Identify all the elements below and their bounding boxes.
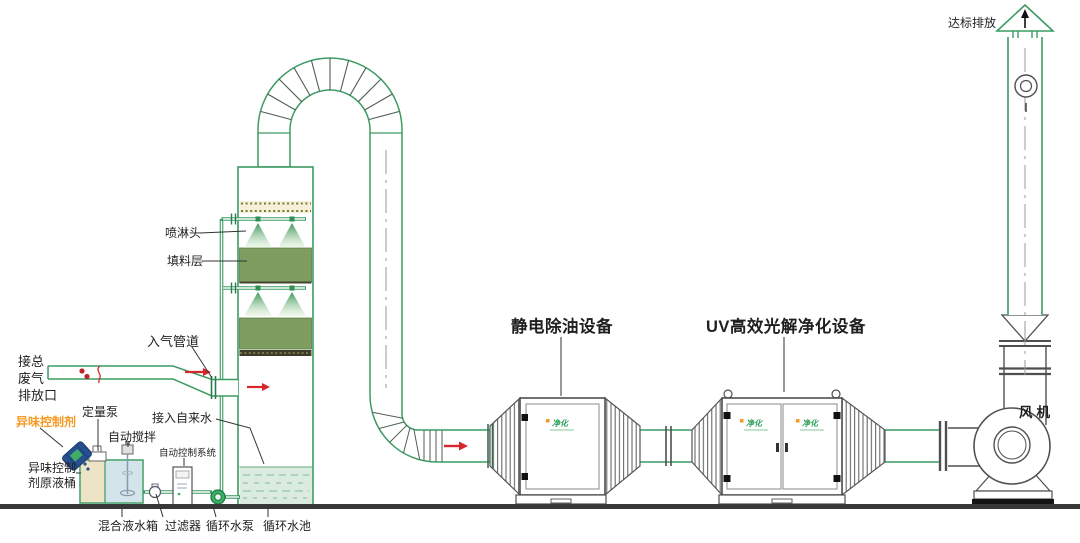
agent-drip [83, 462, 86, 465]
rain-cap [997, 5, 1053, 38]
label-fan: 风机 [1019, 404, 1054, 420]
control-cabinet [173, 467, 192, 505]
label-tap-water: 接入自来水 [152, 410, 212, 425]
label-discharge: 达标排放 [948, 15, 996, 30]
label-waste-gas-2: 废气 [18, 371, 44, 386]
label-inlet-pipe: 入气管道 [147, 334, 199, 349]
uv-corner-bracket [834, 412, 841, 419]
filter-device [150, 484, 161, 498]
connector-pipe-1 [640, 426, 692, 466]
esp-right-transition [605, 398, 640, 495]
label-uv-unit: UV高效光解净化设备 [706, 316, 866, 336]
uv-corner-bracket [724, 412, 731, 419]
uv-door-right [783, 404, 837, 489]
esp-hinge [522, 414, 529, 421]
esp-base [516, 495, 606, 504]
diagram-canvas: 净化 净化 净化 [0, 0, 1080, 543]
agent-compartment [81, 461, 105, 502]
label-waste-gas-1: 接总 [18, 354, 44, 369]
uv-corner-bracket [724, 475, 731, 482]
esp-hinge [522, 473, 529, 480]
mixing-tank [80, 460, 143, 503]
label-agent-tank-1: 异味控制 [28, 461, 76, 475]
brand-logo-text: 净化 [802, 419, 820, 428]
brand-logo-text: 净化 [746, 419, 764, 428]
lifting-ring [724, 390, 732, 398]
packing-support-grid [240, 350, 312, 356]
fan-eye-inner [998, 431, 1026, 459]
uv-right-transition [842, 398, 885, 495]
label-auto-stir: 自动搅拌 [108, 429, 156, 444]
label-esp-unit: 静电除油设备 [511, 316, 613, 336]
label-odor-agent: 异味控制剂 [16, 414, 76, 429]
label-filter: 过滤器 [165, 519, 201, 533]
label-circulating-pool: 循环水池 [263, 519, 311, 533]
waste-gas-inlet-duct [48, 366, 270, 399]
uv-door-handle [776, 443, 779, 452]
uv-base [719, 495, 845, 504]
uv-left-transition [692, 398, 722, 495]
process-flow-diagram: 净化 净化 净化 [0, 0, 1080, 543]
uv-corner-bracket [834, 475, 841, 482]
connector-pipe-2 [885, 430, 940, 462]
brand-logo-text: 净化 [552, 419, 570, 428]
label-waste-gas-3: 排放口 [18, 388, 57, 403]
packing-layer-2 [240, 318, 312, 349]
label-auto-control: 自动控制系统 [159, 447, 217, 459]
uv-unit: 净化 净化 [692, 390, 885, 504]
header-flanges [232, 214, 236, 294]
lifting-ring [832, 390, 840, 398]
esp-left-transition [490, 398, 520, 495]
label-agent-tank-2: 剂原液桶 [28, 475, 76, 490]
demister-layer [240, 201, 312, 213]
label-spray-head: 喷淋头 [165, 226, 201, 240]
circulation-pump-device [211, 490, 225, 504]
label-circulating-pump: 循环水泵 [206, 519, 254, 533]
uv-door-left [727, 404, 781, 489]
label-metering-pump: 定量泵 [82, 404, 118, 419]
esp-unit: 净化 [488, 398, 640, 504]
fan-unit: 风机 [940, 315, 1054, 506]
packing-layer-1 [240, 248, 312, 282]
label-packing-layer: 填料层 [167, 254, 203, 268]
circulating-pool [240, 467, 313, 505]
uv-door-handle [785, 443, 788, 452]
label-mixing-tank: 混合液水箱 [98, 518, 158, 533]
agent-drip [86, 467, 89, 470]
esp-door [526, 404, 599, 489]
